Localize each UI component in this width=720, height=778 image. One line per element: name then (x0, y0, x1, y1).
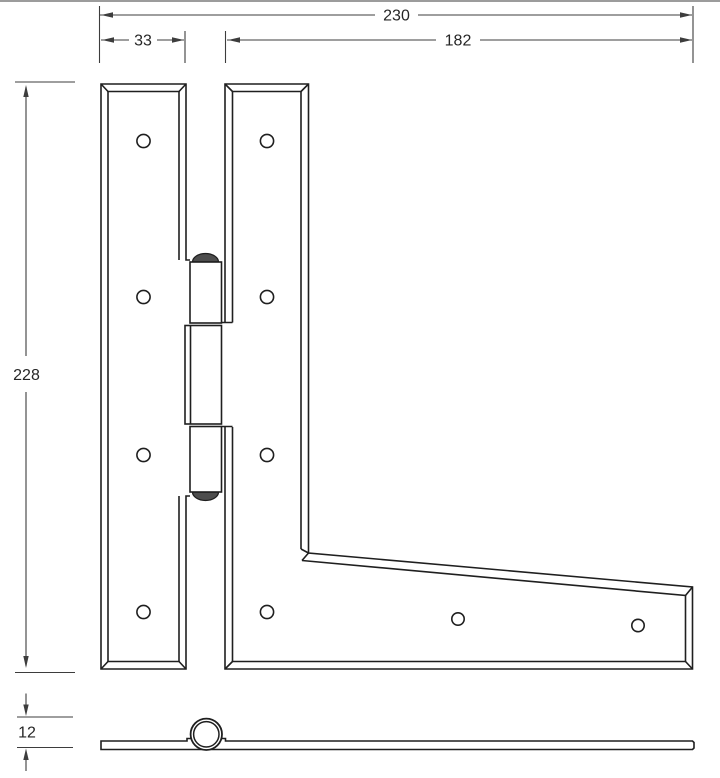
dim-thickness-label: 12 (18, 725, 36, 742)
arrowhead-left (228, 37, 240, 42)
screw-hole (632, 619, 644, 631)
left-leaf-outline (101, 84, 190, 669)
knuckle-bottom (190, 427, 222, 493)
knuckle-connector-caps (222, 323, 233, 427)
arrowhead-right (680, 37, 692, 42)
screw-hole (137, 448, 150, 461)
arrowhead-top (23, 85, 28, 97)
arrowhead-left (102, 37, 114, 42)
arrowhead-down (23, 705, 28, 717)
knuckle-top (190, 262, 222, 323)
arrowhead-right (680, 12, 692, 17)
right-leaf (225, 84, 693, 669)
screw-hole (260, 290, 273, 303)
screw-hole (452, 613, 464, 625)
hinge-technical-drawing-page: 230 33 182 228 12 (0, 0, 720, 778)
hl-hinge-drawing: 230 33 182 228 12 (0, 0, 720, 778)
side-plate (101, 739, 694, 750)
dim-left-leaf-width-label: 33 (134, 33, 152, 50)
screw-hole (260, 605, 273, 618)
arrowhead-up (23, 749, 28, 761)
barrel-outer (191, 719, 222, 750)
dim-thickness: 12 (17, 694, 73, 772)
right-leaf-outline (225, 84, 693, 669)
screw-hole (260, 134, 273, 147)
left-leaf (101, 84, 190, 669)
dim-right-leaf-width: 182 (226, 31, 693, 63)
pin-cap-bottom (193, 492, 219, 501)
front-view (101, 84, 693, 669)
arrowhead-right (172, 37, 184, 42)
screw-hole (137, 290, 150, 303)
arrowhead-bottom (23, 656, 28, 668)
dim-right-leaf-width-label: 182 (445, 33, 472, 50)
screw-hole (137, 605, 150, 618)
left-leaf-bevel (108, 92, 179, 662)
dim-total-width: 230 (100, 6, 694, 63)
dim-height-label: 228 (13, 367, 40, 384)
dim-left-leaf-width: 33 (101, 31, 185, 63)
screw-hole (137, 134, 150, 147)
pin-cap-top (193, 254, 219, 263)
dim-height: 228 (13, 82, 75, 673)
left-leaf-corner-bevels (101, 84, 186, 669)
screw-hole (260, 448, 273, 461)
bottom-view (101, 719, 694, 750)
dim-total-width-label: 230 (383, 8, 410, 25)
right-leaf-bevel-vertical (233, 92, 302, 550)
arrowhead-left (101, 12, 113, 17)
